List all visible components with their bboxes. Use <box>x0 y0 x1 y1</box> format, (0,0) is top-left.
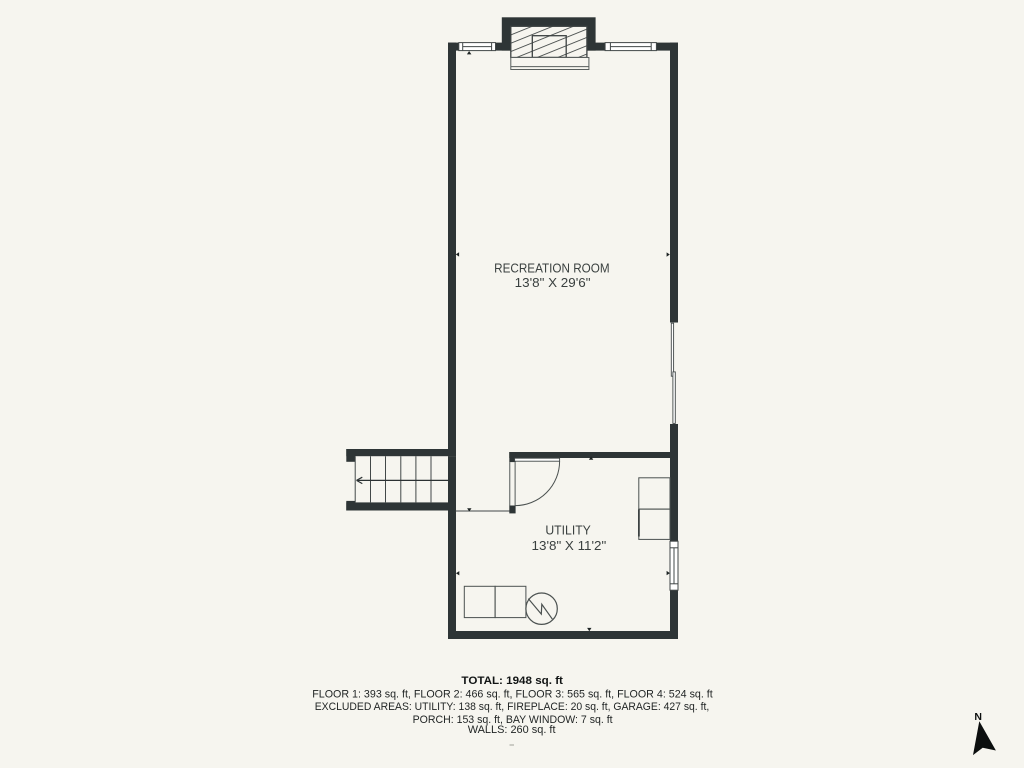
svg-text:TOTAL: 1948 sq. ft: TOTAL: 1948 sq. ft <box>461 675 563 687</box>
svg-text:13'8" X 29'6": 13'8" X 29'6" <box>515 275 591 290</box>
svg-text:WALLS: 260 sq. ft: WALLS: 260 sq. ft <box>468 724 557 736</box>
svg-text:UTILITY: UTILITY <box>545 523 591 538</box>
svg-text:FLOOR 1: 393 sq. ft, FLOOR 2:: FLOOR 1: 393 sq. ft, FLOOR 2: 466 sq. ft… <box>312 688 713 700</box>
svg-text:EXCLUDED AREAS: UTILITY: 138 s: EXCLUDED AREAS: UTILITY: 138 sq. ft, FIR… <box>315 701 710 713</box>
svg-text:N: N <box>974 711 982 723</box>
svg-text:13'8" X 11'2": 13'8" X 11'2" <box>532 538 607 553</box>
svg-text:RECREATION ROOM: RECREATION ROOM <box>494 261 610 276</box>
